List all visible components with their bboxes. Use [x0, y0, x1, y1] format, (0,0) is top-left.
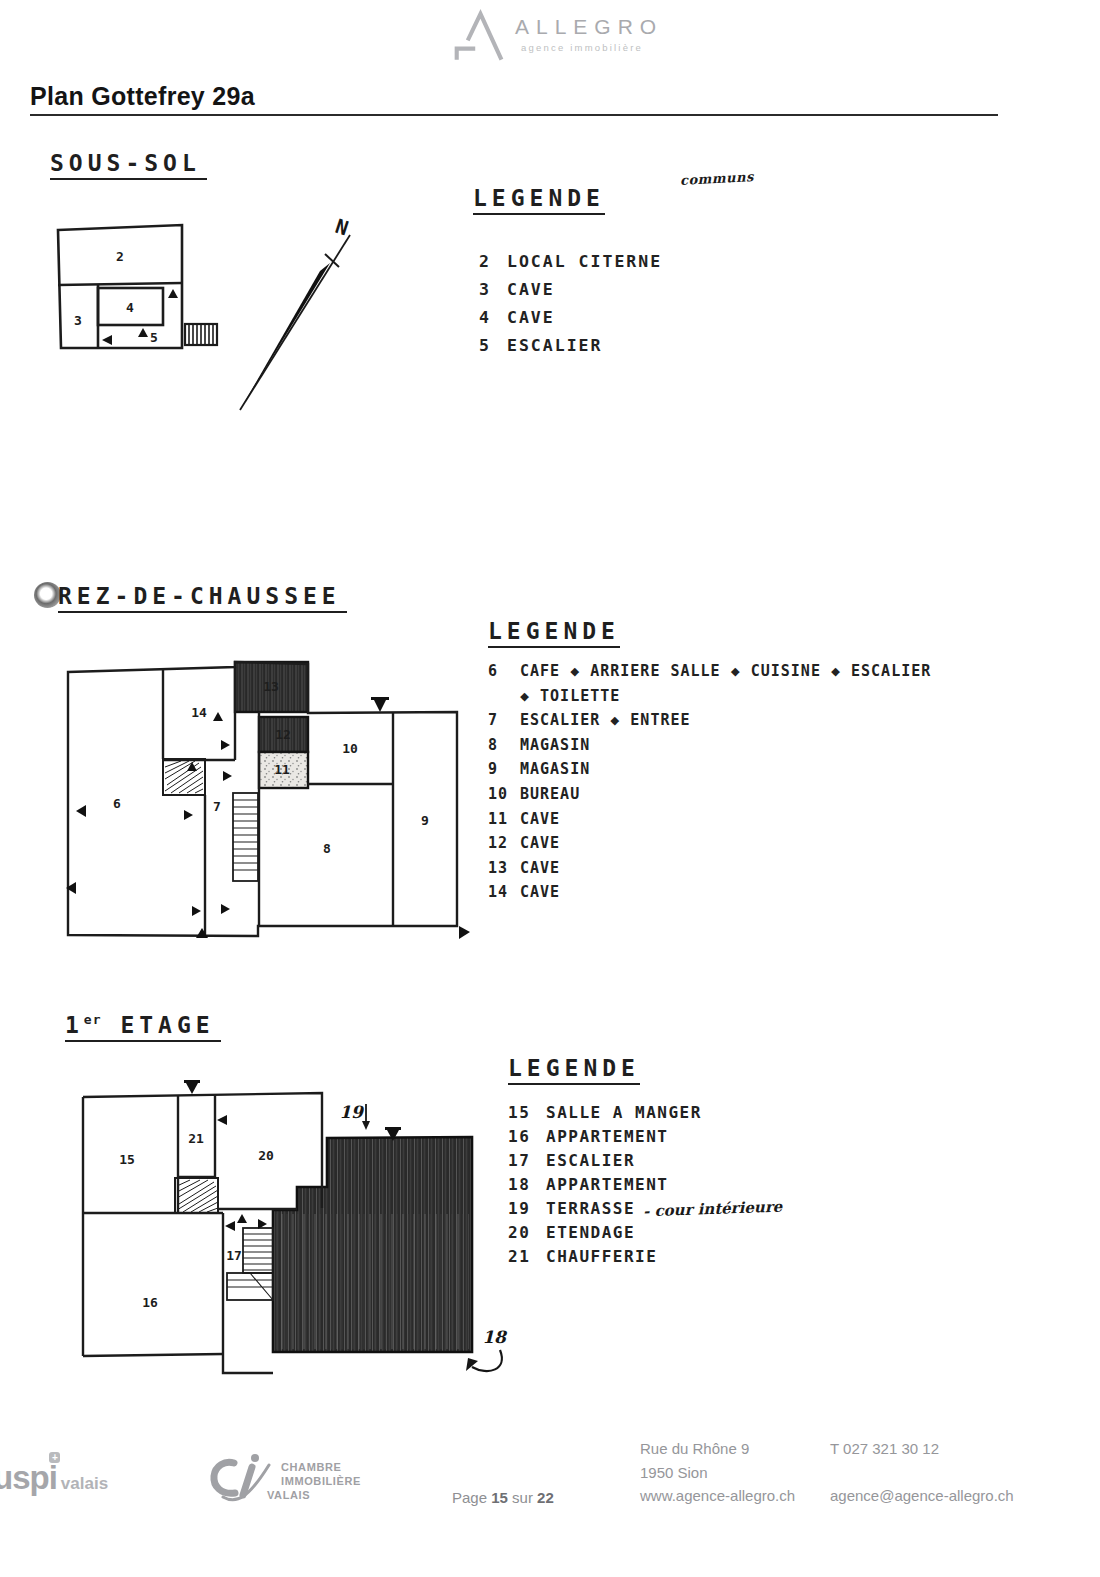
legend-etage: LEGENDE 15SALLE A MANGER 16APPARTEMENT 1…	[508, 1055, 782, 1271]
legend-item-number: 11	[488, 810, 512, 828]
room-label-13: 13	[263, 679, 279, 694]
legend-item-label: ◆ TOILETTE	[520, 687, 620, 705]
legend-item-label: CAVE	[520, 810, 560, 828]
legend-title: LEGENDE	[508, 1055, 640, 1085]
legend-item: 18APPARTEMENT	[508, 1175, 782, 1199]
room-label-8: 8	[323, 841, 331, 856]
legend-item-number: 18	[508, 1175, 536, 1194]
legend-item: 6CAFE ◆ ARRIERE SALLE ◆ CUISINE ◆ ESCALI…	[488, 662, 931, 687]
legend-item-label: CAVE	[520, 834, 560, 852]
legend-item-label: APPARTEMENT	[546, 1127, 668, 1146]
legend-item-number: 17	[508, 1151, 536, 1170]
legend-item: ◆ TOILETTE	[488, 687, 931, 712]
stairs-upper-rez	[163, 759, 205, 795]
title-rule	[30, 114, 998, 116]
page-number: Page 15 sur 22	[452, 1489, 554, 1506]
scanned-plan-page: { "header": { "logo_text": "ALLEGRO", "l…	[0, 0, 1100, 1577]
legend-item-number: 14	[488, 883, 512, 901]
legend-item-number: 15	[508, 1103, 536, 1122]
legend-item-number: 8	[488, 736, 512, 754]
heading-etage: 1er ETAGE	[65, 1012, 221, 1042]
legend-item-number: 16	[508, 1127, 536, 1146]
room-label-4: 4	[126, 300, 134, 315]
room-label-11: 11	[274, 762, 290, 777]
address-street: Rue du Rhône 9	[640, 1437, 795, 1461]
chambre-immobiliere-logo: CHAMBRE IMMOBILIÈRE VALAIS	[205, 1453, 361, 1509]
legend-item-label: BUREAU	[520, 785, 580, 803]
legend-item: 12CAVE	[488, 834, 931, 859]
legend-item-number: 7	[488, 711, 512, 729]
legend-item-label: ETENDAGE	[546, 1223, 635, 1242]
legend-item-number: 21	[508, 1247, 536, 1266]
legend-item-label: CAVE	[520, 859, 560, 877]
room-label-3: 3	[74, 313, 82, 328]
legend-item-label: ESCALIER	[507, 336, 602, 355]
page-title: Plan Gottefrey 29a	[30, 82, 255, 111]
dark-fill-streaks	[276, 1214, 469, 1349]
room-label-9: 9	[421, 813, 429, 828]
legend-item-number: 12	[488, 834, 512, 852]
legend-item-number: 2	[473, 252, 491, 271]
logo-name: ALLEGRO	[515, 15, 663, 39]
legend-sous-sol: LEGENDE communs 2LOCAL CITERNE 3CAVE 4CA…	[473, 185, 662, 364]
room-label-2: 2	[116, 249, 124, 264]
handwritten-note-communs: communs	[680, 169, 755, 188]
agency-logo: ALLEGRO agence immobilière	[443, 3, 683, 65]
room-label-7: 7	[213, 799, 221, 814]
legend-item: 5ESCALIER	[473, 336, 662, 364]
legend-item-label: MAGASIN	[520, 736, 590, 754]
page-current: 15	[491, 1489, 508, 1506]
room-label-6: 6	[113, 796, 121, 811]
room-label-20: 20	[258, 1148, 274, 1163]
room-label-16: 16	[142, 1295, 158, 1310]
room-label-12: 12	[275, 727, 291, 742]
chambre-line3: VALAIS	[267, 1488, 361, 1502]
legend-item: 19TERRASSE- cour intérieure	[508, 1199, 782, 1223]
legend-title: LEGENDE	[488, 618, 620, 648]
heading-sous-sol: SOUS-SOL	[50, 150, 207, 180]
allegro-mountain-icon	[443, 4, 507, 64]
stairs-corridor-rez	[233, 793, 258, 881]
legend-item: 15SALLE A MANGER	[508, 1103, 782, 1127]
legend-item-label: MAGASIN	[520, 760, 590, 778]
legend-item-label: CHAUFFERIE	[546, 1247, 657, 1266]
heading-etage-rest: ETAGE	[120, 1012, 214, 1038]
legend-item-number: 9	[488, 760, 512, 778]
room-label-17: 17	[226, 1248, 242, 1263]
heading-rez: REZ-DE-CHAUSSEE	[58, 583, 347, 613]
legend-item-number: 6	[488, 662, 512, 680]
legend-item: 9MAGASIN	[488, 760, 931, 785]
legend-item-label: CAVE	[507, 308, 555, 327]
legend-item-number: 5	[473, 336, 491, 355]
stairs-sous-sol	[185, 324, 217, 345]
door-markers	[102, 289, 178, 345]
legend-item-label: ESCALIER ◆ ENTREE	[520, 711, 691, 729]
contact-phone: T 027 321 30 12	[830, 1437, 1014, 1461]
legend-item: 16APPARTEMENT	[508, 1127, 782, 1151]
legend-item: 3CAVE	[473, 280, 662, 308]
annotation-19: 19	[339, 1102, 365, 1122]
uspi-region-text: valais	[61, 1474, 108, 1494]
annotation-18: 18	[482, 1327, 508, 1347]
legend-item-number: 13	[488, 859, 512, 877]
uspi-logo-text: uspi+	[0, 1459, 57, 1497]
legend-item-number: 20	[508, 1223, 536, 1242]
legend-item-label: ESCALIER	[546, 1151, 635, 1170]
legend-item-number: 4	[473, 308, 491, 327]
scan-smudge	[34, 582, 61, 608]
rez-floorplan: 6 14 7 13 12 11 10 9 8	[55, 655, 485, 955]
stairs-upper-etage	[175, 1178, 218, 1213]
legend-item-number: 3	[473, 280, 491, 299]
legend-item-label: SALLE A MANGER	[546, 1103, 702, 1122]
legend-item: 11CAVE	[488, 810, 931, 835]
chambre-line1: CHAMBRE	[281, 1460, 361, 1474]
address-website: www.agence-allegro.ch	[640, 1484, 795, 1508]
address-city: 1950 Sion	[640, 1461, 795, 1485]
north-arrow: N	[228, 210, 368, 420]
legend-item-label: CAVE	[507, 280, 555, 299]
room-label-14: 14	[191, 705, 207, 720]
agency-contact: T 027 321 30 12 agence@agence-allegro.ch	[830, 1437, 1014, 1508]
room-label-21: 21	[188, 1131, 204, 1146]
legend-item-label: APPARTEMENT	[546, 1175, 668, 1194]
legend-rez: LEGENDE 6CAFE ◆ ARRIERE SALLE ◆ CUISINE …	[488, 618, 931, 908]
chambre-line2: IMMOBILIÈRE	[281, 1474, 361, 1488]
page-total: 22	[537, 1489, 554, 1506]
legend-item: 2LOCAL CITERNE	[473, 252, 662, 280]
uspi-valais-logo: uspi+ valais	[0, 1459, 108, 1497]
legend-item-label: CAFE ◆ ARRIERE SALLE ◆ CUISINE ◆ ESCALIE…	[520, 662, 931, 680]
legend-item: 14CAVE	[488, 883, 931, 908]
agency-address: Rue du Rhône 9 1950 Sion www.agence-alle…	[640, 1437, 795, 1508]
legend-item-label: TERRASSE	[546, 1199, 635, 1218]
legend-item: 21CHAUFFERIE	[508, 1247, 782, 1271]
room-label-5: 5	[150, 330, 158, 345]
room-label-15: 15	[119, 1152, 135, 1167]
handwritten-cour-interieure: - cour intérieure	[643, 1198, 783, 1221]
stairs-corridor-etage	[227, 1228, 273, 1300]
logo-subtitle: agence immobilière	[521, 42, 663, 53]
etage-floorplan: 15 21 20 16 17 19 18	[70, 1080, 530, 1410]
legend-item-label: CAVE	[520, 883, 560, 901]
legend-item: 7ESCALIER ◆ ENTREE	[488, 711, 931, 736]
legend-item-number: 10	[488, 785, 512, 803]
legend-item: 8MAGASIN	[488, 736, 931, 761]
uspi-pin-icon: +	[49, 1452, 60, 1463]
room-label-10: 10	[342, 741, 358, 756]
legend-item-label: LOCAL CITERNE	[507, 252, 662, 271]
legend-item: 13CAVE	[488, 859, 931, 884]
legend-item: 17ESCALIER	[508, 1151, 782, 1175]
legend-item: 4CAVE	[473, 308, 662, 336]
legend-item: 20ETENDAGE	[508, 1223, 782, 1247]
legend-item: 10BUREAU	[488, 785, 931, 810]
contact-email: agence@agence-allegro.ch	[830, 1484, 1014, 1508]
heading-etage-sup: er	[84, 1012, 102, 1027]
heading-etage-num: 1	[65, 1012, 84, 1038]
annotation-18-arrow	[472, 1350, 502, 1371]
legend-item-number: 19	[508, 1199, 536, 1218]
legend-title: LEGENDE	[473, 185, 605, 215]
